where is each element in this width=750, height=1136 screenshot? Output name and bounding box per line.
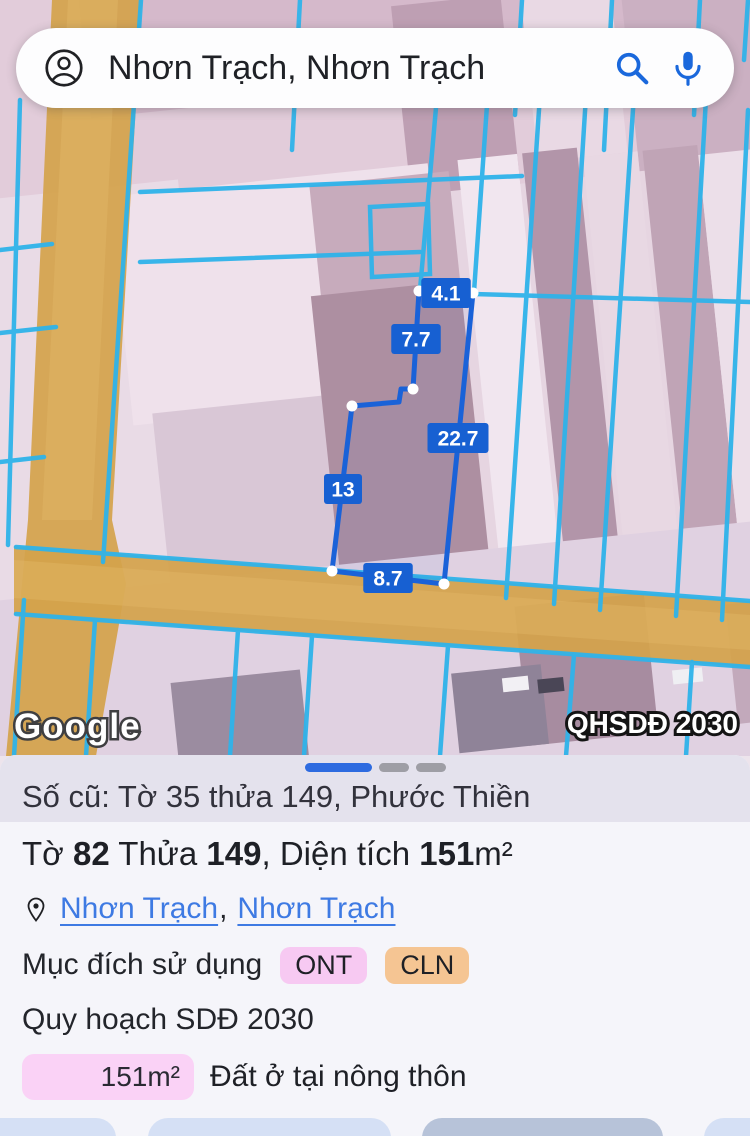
planning-label: Quy hoạch SDĐ 2030 [22,1003,314,1037]
area-number: 151 [419,835,474,872]
pagination-dots [0,762,750,772]
page-dot-active[interactable] [305,763,372,772]
legend-text: Đất ở tại nông thôn [210,1060,467,1094]
bottom-button-2[interactable] [148,1118,391,1136]
panel-header: Số cũ: Tờ 35 thửa 149, Phước Thiền [0,755,750,822]
district-link[interactable]: Nhơn Trạch [237,892,395,926]
purpose-chip-ont[interactable]: ONT [280,947,367,984]
measurement-label: 4.1 [421,278,471,308]
svg-text:8.7: 8.7 [373,568,402,591]
planning-row: Quy hoạch SDĐ 2030 [0,994,750,1046]
bottom-button-row [0,1118,750,1136]
bottom-button-3[interactable] [422,1118,663,1136]
plot-number: 149 [206,835,261,872]
svg-text:13: 13 [331,479,354,502]
app-screen: 4.17.722.7138.7 Google QHSDĐ 2030 Nhơn T… [0,0,750,1136]
title-part: , Diện tích [261,835,410,872]
parcel-vertex-dot[interactable] [439,579,450,590]
page-dot[interactable] [416,763,446,772]
title-part: Tờ [22,835,64,872]
measurement-label: 8.7 [363,563,413,593]
parcel-vertex-dot[interactable] [408,384,419,395]
search-input[interactable]: Nhơn Trạch, Nhơn Trạch [108,49,604,88]
measurement-label: 22.7 [428,423,489,453]
measurement-label: 7.7 [391,324,441,354]
planning-layer-badge: QHSDĐ 2030 [567,708,738,739]
old-reference-text: Số cũ: Tờ 35 thửa 149, Phước Thiền [0,772,750,818]
svg-text:7.7: 7.7 [401,329,430,352]
parcel-title: Tờ 82 Thửa 149, Diện tích 151m² [0,822,750,882]
bottom-button-4[interactable] [704,1118,750,1136]
parcel-vertex-dot[interactable] [347,401,358,412]
search-icon[interactable] [604,40,660,96]
sheet-number: 82 [73,835,110,872]
location-pin-icon [26,896,46,923]
title-part: Thửa [118,835,197,872]
land-purpose-row: Mục đích sử dụng ONT CLN [0,936,750,994]
purpose-label: Mục đích sử dụng [22,948,262,982]
google-watermark: Google [14,707,141,746]
bottom-button-1[interactable] [0,1118,116,1136]
parcel-vertex-dot[interactable] [327,566,338,577]
satellite-map[interactable]: 4.17.722.7138.7 Google QHSDĐ 2030 [0,0,750,756]
area-unit: m² [474,835,512,872]
location-separator: , [219,892,227,926]
microphone-icon[interactable] [660,40,716,96]
svg-text:22.7: 22.7 [438,428,479,451]
search-bar[interactable]: Nhơn Trạch, Nhơn Trạch [16,28,734,108]
purpose-chip-cln[interactable]: CLN [385,947,469,984]
commune-link[interactable]: Nhơn Trạch [60,892,218,926]
svg-text:4.1: 4.1 [431,283,461,306]
page-dot[interactable] [379,763,409,772]
measurement-label: 13 [324,474,362,504]
legend-area-badge: 151m² [22,1054,194,1100]
account-icon[interactable] [36,40,92,96]
parcel-info-panel: Số cũ: Tờ 35 thửa 149, Phước Thiền Tờ 82… [0,755,750,1136]
legend-row: 151m² Đất ở tại nông thôn [0,1046,750,1108]
location-row: Nhơn Trạch,Nhơn Trạch [0,882,750,936]
